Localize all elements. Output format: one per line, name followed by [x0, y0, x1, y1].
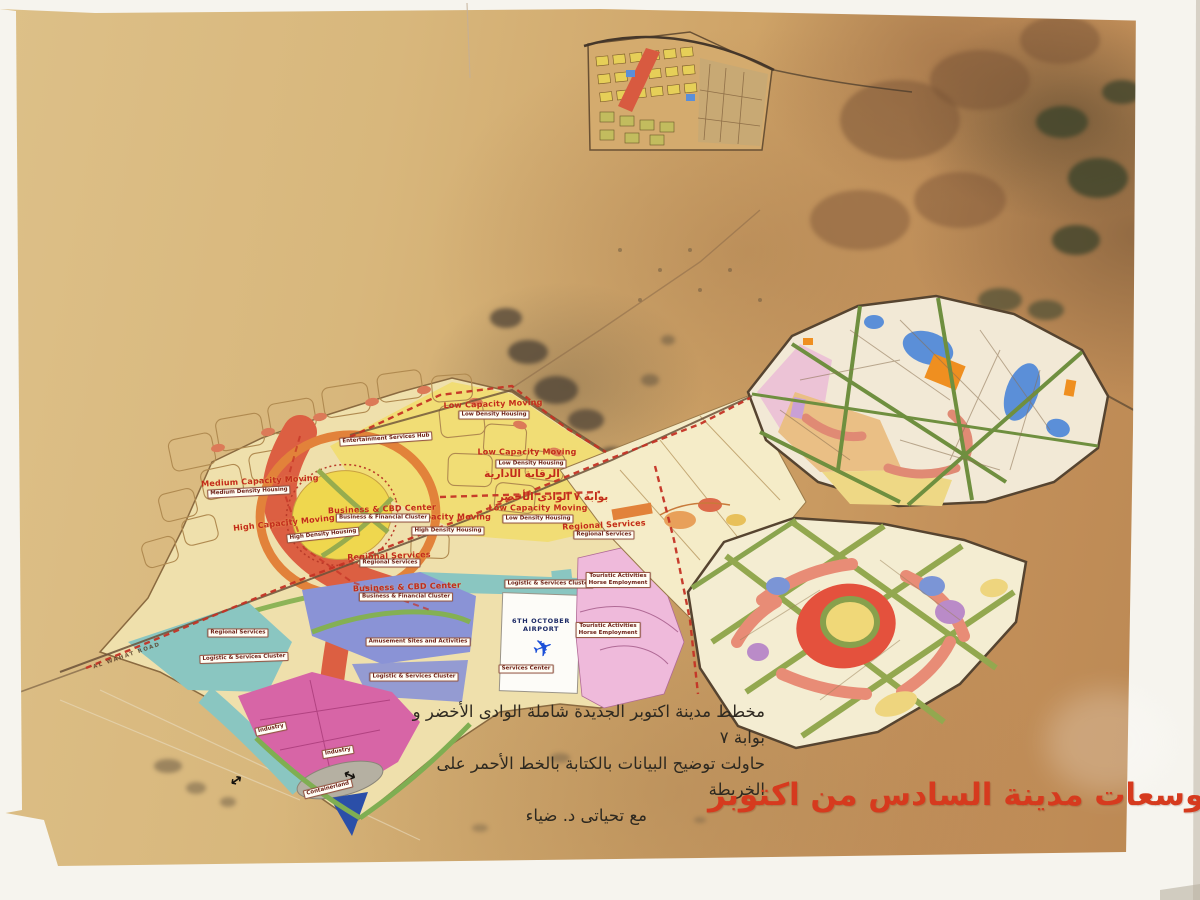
- zone-chip-regional-services-2: Regional Services: [573, 531, 634, 540]
- zone-chip-logistic-2: Logistic & Services Cluster: [369, 673, 458, 682]
- zone-chip-regional-services-1: Regional Services: [359, 559, 420, 568]
- zone-chip-services-center: Services Center: [499, 665, 554, 674]
- map-photo: Low Capacity Moving Low Capacity Moving …: [0, 0, 1200, 900]
- marker-label-admin-control-arabic: الرقابة الأدارية: [484, 468, 560, 480]
- east-city: [748, 296, 1152, 506]
- zone-chip-business-financial-1: Business & Financial Cluster: [336, 514, 430, 523]
- touristic-line2: Horse Employment: [589, 580, 648, 587]
- zone-chip-regional-services-3: Regional Services: [207, 629, 268, 638]
- zone-chip-low-density-2: Low Density Housing: [495, 460, 566, 469]
- note-line-3: مع تحياتى د. ضياء: [390, 803, 647, 829]
- marker-label-low-capacity-2: Low Capacity Moving: [477, 448, 576, 457]
- zone-chip-touristic-2: Touristic Activities Horse Employment: [576, 622, 641, 638]
- zone-chip-low-density-1: Low Density Housing: [458, 411, 529, 420]
- terrain-speckles: [618, 248, 762, 302]
- paper-crease: [467, 3, 470, 78]
- zone-chip-low-density-3: Low Density Housing: [502, 515, 573, 524]
- zone-chip-business-financial-2: Business & Financial Cluster: [359, 593, 453, 602]
- zone-chip-amusement: Amusement Sites and Activities: [366, 638, 471, 647]
- touristic-line2: Horse Employment: [579, 630, 638, 637]
- airport-name: 6TH OCTOBER AIRPORT: [512, 617, 570, 633]
- map-title: توسعات مدينة السادس من اكتوبر: [708, 777, 1200, 813]
- touristic-line1: Touristic Activities: [589, 573, 648, 580]
- zone-chip-logistic-3: Logistic & Services Cluster: [504, 580, 593, 589]
- marker-label-low-capacity-3: Low Capacity Moving: [488, 504, 587, 513]
- note-line-1: مخطط مدينة اكتوبر الجديدة شاملة الوادى ا…: [390, 699, 765, 751]
- zone-chip-touristic-1: Touristic Activities Horse Employment: [586, 572, 651, 588]
- marker-label-green-valley-gate-arabic: بوابة ٧ الوادى الأخضر: [498, 491, 609, 503]
- touristic-line1: Touristic Activities: [579, 623, 638, 630]
- zone-chip-high-density-1: High Density Housing: [411, 527, 484, 536]
